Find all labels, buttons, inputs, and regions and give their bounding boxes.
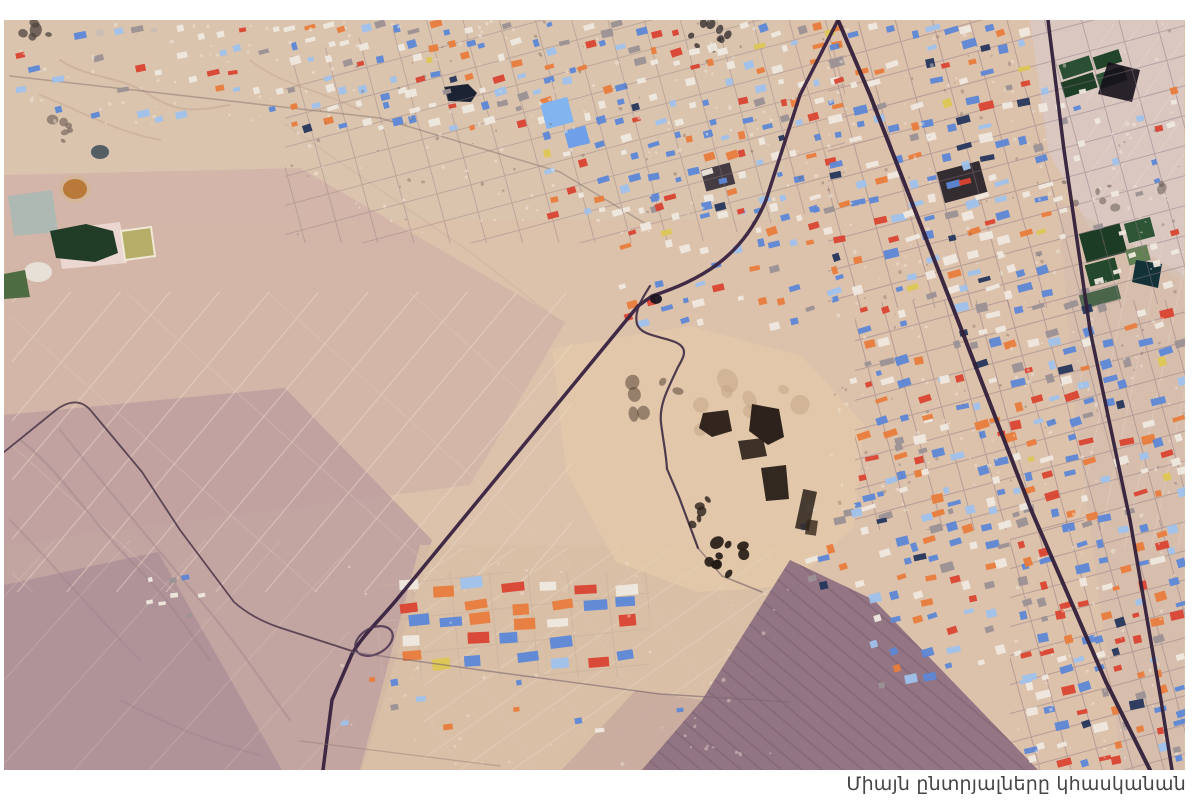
page: Միայն ընտրյալները կհասկանան [0,0,1200,800]
photo-caption: Միայն ընտրյալները կհասկանան [0,771,1186,797]
satellite-photo [4,20,1185,770]
